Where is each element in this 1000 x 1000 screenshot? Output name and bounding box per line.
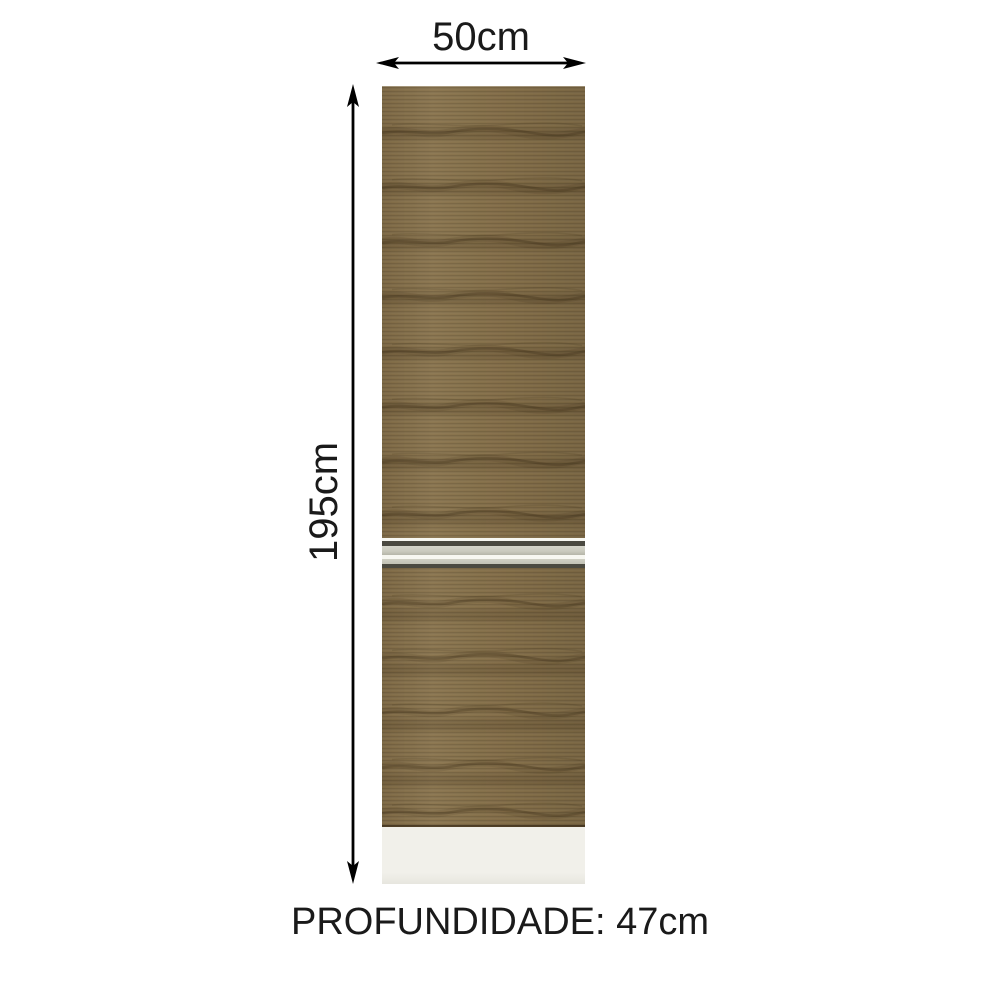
height-dimension-label: 195cm <box>304 442 344 562</box>
height-dimension-arrow-icon <box>345 84 361 884</box>
cabinet-image <box>382 86 585 884</box>
cabinet-base-plinth <box>382 827 585 884</box>
cabinet-lower-door <box>382 568 585 827</box>
width-dimension-label: 50cm <box>374 16 588 58</box>
product-dimension-diagram: 50cm 195cm <box>0 0 1000 1000</box>
height-dimension-label-wrap: 195cm <box>304 402 344 602</box>
width-dimension-arrow-icon <box>376 55 586 71</box>
wood-grain-decoration <box>382 568 585 825</box>
cabinet-upper-door <box>382 86 585 538</box>
handle-strip-silver-band-upper <box>382 546 585 555</box>
cabinet-handle-strip <box>382 538 585 568</box>
depth-label: PROFUNDIDADE: 47cm <box>0 902 1000 944</box>
wood-grain-decoration <box>382 87 585 538</box>
